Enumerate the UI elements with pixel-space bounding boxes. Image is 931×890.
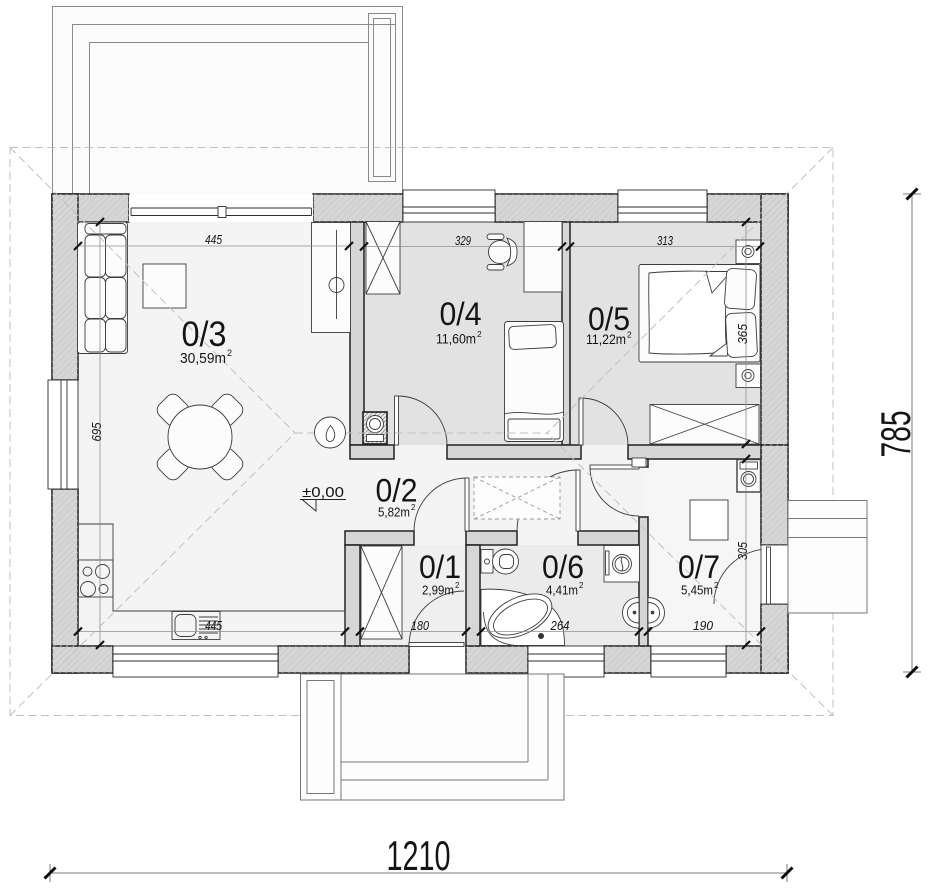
svg-text:2: 2 xyxy=(714,581,719,590)
svg-text:0/4: 0/4 xyxy=(440,296,482,332)
svg-text:264: 264 xyxy=(550,619,570,633)
svg-text:11,22m: 11,22m xyxy=(586,332,626,347)
svg-text:2: 2 xyxy=(227,348,232,358)
svg-text:329: 329 xyxy=(455,234,471,248)
svg-text:785: 785 xyxy=(872,411,919,458)
svg-text:5,82m: 5,82m xyxy=(378,506,410,520)
svg-text:190: 190 xyxy=(693,619,713,633)
svg-text:0/3: 0/3 xyxy=(182,315,227,354)
svg-text:180: 180 xyxy=(411,619,429,633)
svg-text:±0,00: ±0,00 xyxy=(302,484,344,501)
svg-text:30,59m: 30,59m xyxy=(180,351,226,367)
svg-text:5,45m: 5,45m xyxy=(681,584,713,598)
svg-text:445: 445 xyxy=(205,619,222,633)
svg-text:11,60m: 11,60m xyxy=(436,332,476,347)
svg-text:2: 2 xyxy=(579,581,584,590)
svg-text:2,99m: 2,99m xyxy=(422,584,454,598)
svg-text:2: 2 xyxy=(411,503,416,512)
svg-text:4,41m: 4,41m xyxy=(546,584,578,598)
svg-text:0/6: 0/6 xyxy=(542,549,584,585)
svg-text:365: 365 xyxy=(736,324,750,344)
svg-text:0/7: 0/7 xyxy=(678,549,720,585)
svg-text:445: 445 xyxy=(205,233,222,247)
svg-text:695: 695 xyxy=(90,422,104,441)
svg-text:305: 305 xyxy=(736,542,750,560)
svg-text:0/1: 0/1 xyxy=(419,549,461,585)
svg-text:2: 2 xyxy=(627,330,632,340)
svg-text:1210: 1210 xyxy=(387,832,451,879)
svg-text:2: 2 xyxy=(477,329,482,339)
svg-text:313: 313 xyxy=(657,234,673,248)
svg-text:2: 2 xyxy=(455,581,460,590)
